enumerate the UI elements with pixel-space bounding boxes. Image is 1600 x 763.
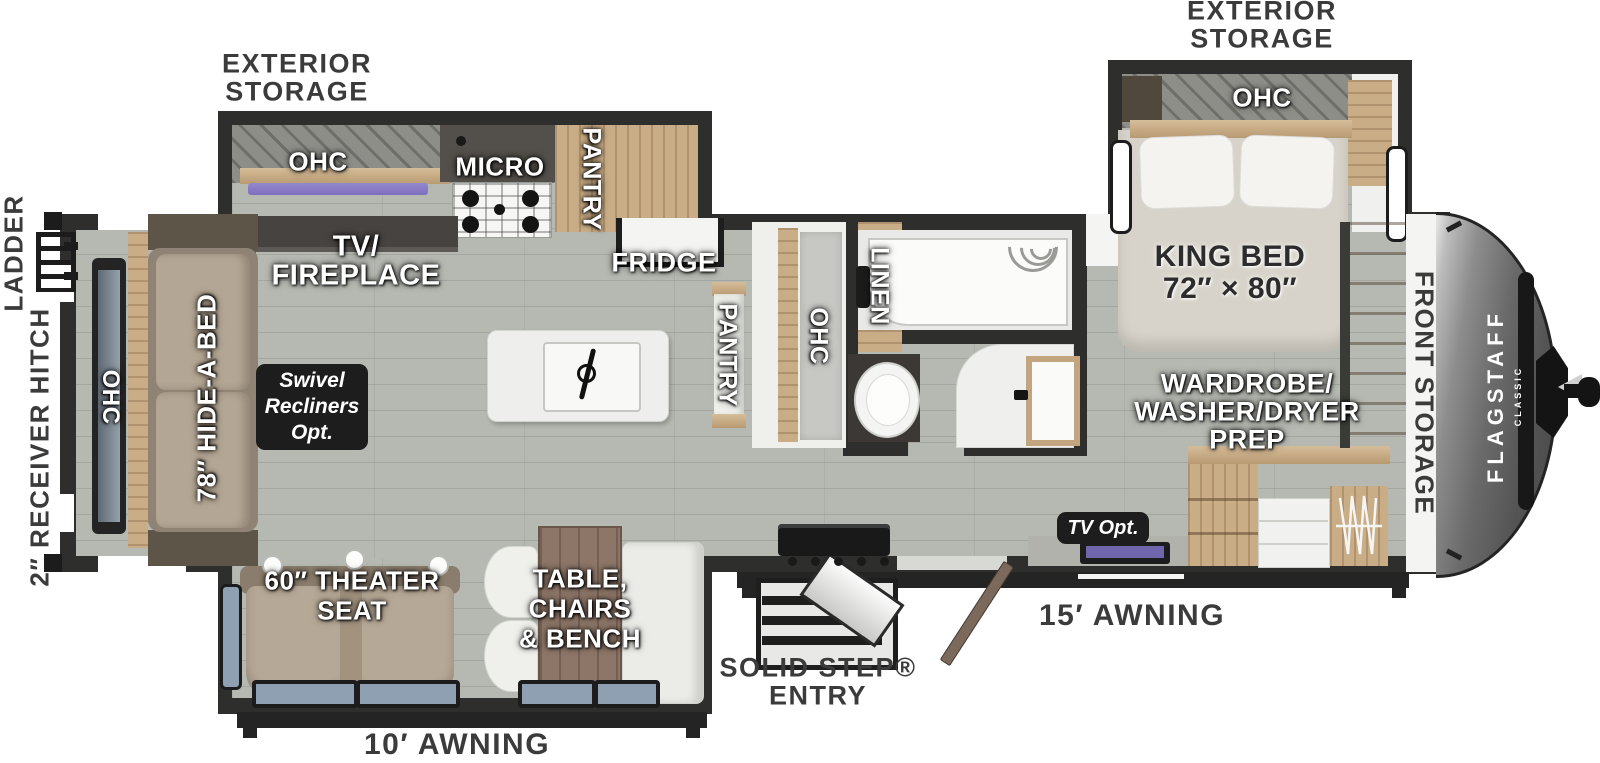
griddle-foot	[880, 557, 889, 566]
receiver-hitch-label: 2″ RECEIVER HITCH	[25, 307, 56, 586]
drain-icon	[577, 364, 596, 383]
griddle-foot	[857, 557, 866, 566]
awning-bracket	[742, 586, 756, 598]
bedroom-window	[1110, 140, 1132, 234]
swivel-recliners-line: Recliners	[256, 394, 368, 420]
wardrobe-label: WASHER/DRYER	[1134, 397, 1360, 428]
range-knob-icon	[456, 136, 466, 146]
micro-label: MICRO	[455, 152, 544, 183]
exterior-storage-left-label: EXTERIOR	[222, 49, 372, 80]
pantry-main-label: PANTRY	[713, 304, 742, 407]
awning-bracket	[1392, 586, 1406, 598]
awning-bracket	[686, 726, 700, 738]
theater-seat-label: SEAT	[317, 596, 386, 627]
tv-screen	[1086, 546, 1164, 558]
ohc-rear-label: OHC	[96, 370, 124, 425]
exterior-storage-left-label: STORAGE	[225, 77, 369, 108]
wardrobe-label: WARDROBE/	[1161, 369, 1334, 400]
slide-window	[594, 680, 660, 708]
solid-step-label: SOLID STEP®	[720, 653, 917, 684]
wardrobe-steps	[1188, 464, 1258, 566]
drawer-seam	[1258, 520, 1328, 522]
brand-logo: FLAGSTAFF	[1483, 309, 1509, 483]
hitch-handle-icon	[1578, 377, 1600, 407]
sofa-end-table	[148, 214, 258, 250]
awning-rail-10	[237, 712, 707, 728]
burner-icon	[522, 216, 539, 233]
swivel-recliners-line: Opt.	[256, 420, 368, 446]
ladder-icon	[36, 232, 76, 292]
swivel-recliners-line: Swivel	[256, 368, 368, 394]
griddle-foot	[788, 557, 797, 566]
galley-ohc-rail	[778, 228, 798, 442]
bedroom-slide-wall-top	[1108, 60, 1412, 74]
pillow	[1139, 134, 1235, 209]
pillow	[1239, 134, 1335, 209]
awning-bracket	[243, 726, 257, 738]
linen-label: LINEN	[865, 247, 894, 325]
solid-step-label: ENTRY	[769, 681, 867, 712]
tv-opt-label: TV Opt.	[1057, 517, 1149, 540]
pantry-cap	[712, 414, 746, 428]
sofa-back-table	[128, 232, 148, 548]
entry-door-opening	[897, 556, 1007, 570]
rear-bumper-end	[44, 212, 62, 230]
wardrobe-step-edge	[1188, 498, 1258, 501]
window-rear-2	[58, 494, 74, 532]
awning-rail-window-gap	[1078, 574, 1184, 579]
ladder-mount	[64, 272, 78, 280]
king-bed-label: 72″ × 80″	[1163, 272, 1297, 306]
ladder-label: LADDER	[0, 194, 30, 311]
outside-griddle-icon	[778, 524, 890, 556]
griddle-feet	[788, 557, 889, 566]
fridge-label: FRIDGE	[611, 248, 716, 279]
burner-icon	[522, 190, 539, 207]
ohc-bedroom-label: OHC	[1232, 83, 1291, 114]
awning-10-label: 10′ AWNING	[364, 728, 550, 762]
dinette-label: CHAIRS	[529, 594, 632, 625]
ladder-mount	[64, 242, 78, 250]
bedroom-ohc-shelf	[1130, 120, 1352, 138]
tv-fireplace-label: FIREPLACE	[272, 260, 441, 293]
bedroom-slide-shelf	[1122, 76, 1162, 122]
wardrobe-step-edge	[1188, 532, 1258, 535]
slide-window-side	[220, 584, 242, 690]
brand-series-logo: CLASSIC	[1513, 366, 1523, 427]
ohc-bath-label: OHC	[804, 307, 833, 364]
hide-a-bed-label: 78″ HIDE-A-BED	[192, 294, 223, 503]
tv-option-badge: TV Opt.	[1057, 512, 1149, 544]
awning-15-label: 15′ AWNING	[1039, 599, 1225, 633]
swivel-recliners-option-badge: Swivel Recliners Opt.	[256, 364, 368, 450]
wardrobe-label: PREP	[1209, 425, 1285, 456]
griddle-foot	[811, 557, 820, 566]
burner-icon	[462, 216, 479, 233]
toilet-bowl	[866, 374, 910, 426]
slide-window	[518, 680, 596, 708]
ohc-kitchen-label: OHC	[288, 147, 347, 178]
led-strip-light	[248, 183, 428, 195]
theater-seat-label: 60″ THEATER	[265, 566, 440, 597]
sofa-end-table	[148, 530, 258, 566]
front-storage-label: FRONT STORAGE	[1409, 271, 1440, 515]
pantry-slide-label: PANTRY	[577, 128, 606, 231]
kitchen-slide-wall-top	[218, 111, 712, 125]
burner-icon	[494, 204, 505, 215]
griddle-foot	[834, 557, 843, 566]
kitchen-slide-wall-right	[698, 111, 712, 232]
burner-icon	[462, 190, 479, 207]
washer-dryer-coil-icon	[1336, 490, 1382, 562]
king-bed-label: KING BED	[1155, 240, 1306, 274]
slide-window	[356, 680, 460, 708]
dinette-label: & BENCH	[519, 624, 641, 655]
vanity-sink	[1026, 356, 1080, 446]
dinette-label: TABLE,	[533, 564, 628, 595]
slide-window	[252, 680, 358, 708]
exterior-storage-right-label: STORAGE	[1190, 24, 1334, 55]
faucet-icon	[1014, 390, 1028, 400]
drawer-seam	[1258, 543, 1328, 545]
floorplan-image: Swivel Recliners Opt. TV Opt. EXTERIOR S…	[0, 0, 1600, 763]
wardrobe-drawers	[1258, 498, 1330, 568]
